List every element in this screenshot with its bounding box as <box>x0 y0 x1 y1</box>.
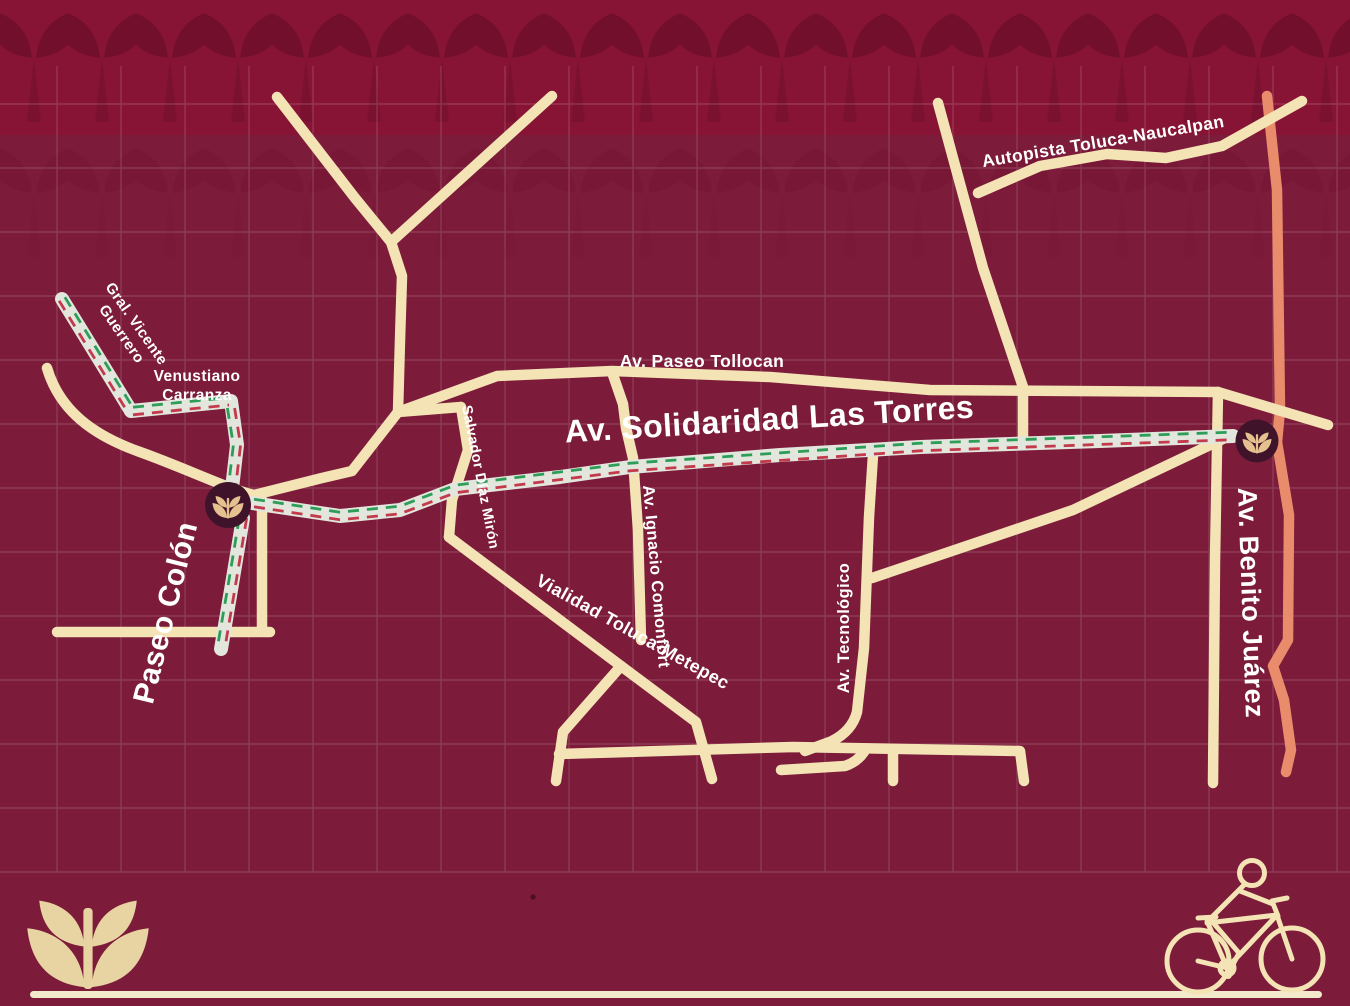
route-endpoint-benito-juarez <box>1236 420 1279 463</box>
route-endpoint-paseo-colon <box>205 482 251 528</box>
road-diagonal-juarez-tecnologico <box>872 437 1227 578</box>
road-pentagon-top <box>398 407 461 412</box>
bike-route-map-poster: Av. Paseo Tollocan Av. Solidaridad Las T… <box>0 0 1350 1006</box>
road-branch-southwest <box>556 666 621 781</box>
cyclist-icon <box>1167 861 1323 993</box>
label-tecnologico: Av. Tecnológico <box>835 563 853 693</box>
label-paseo-tollocan: Av. Paseo Tollocan <box>620 351 784 371</box>
road-slip <box>781 752 864 770</box>
label-venustiano-carranza-line1: Venustiano <box>154 368 241 385</box>
label-benito-juarez: Av. Benito Juárez <box>1232 487 1270 718</box>
label-venustiano-carranza-line2: Carranza <box>162 387 232 404</box>
road-bottom-horizontal <box>559 747 1024 781</box>
label-paseo-colon: Paseo Colón <box>127 518 204 707</box>
road-benito-juarez <box>1213 392 1218 783</box>
bike-route <box>59 297 1233 649</box>
baseline-rule <box>30 991 1322 998</box>
plant-logo-icon <box>27 901 148 989</box>
small-dot <box>530 894 535 899</box>
